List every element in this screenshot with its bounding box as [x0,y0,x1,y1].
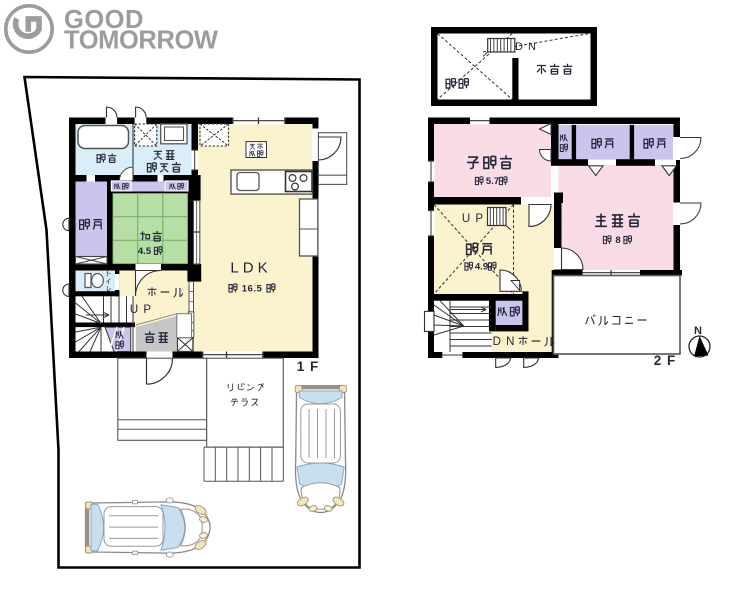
svg-text:1 F: 1 F [297,359,320,374]
svg-text:TOMORROW: TOMORROW [64,27,219,55]
svg-text:N: N [694,325,702,337]
svg-text:8: 8 [615,235,620,246]
svg-text:D N: D N [493,336,516,348]
svg-text:U P: U P [130,304,152,316]
svg-text:D N: D N [515,41,537,53]
svg-text:16.5: 16.5 [242,284,263,295]
svg-text:5.7: 5.7 [486,176,499,187]
svg-text:4.9: 4.9 [475,262,488,273]
svg-text:U P: U P [462,213,484,225]
svg-text:2 F: 2 F [654,353,677,368]
svg-text:LDK: LDK [230,260,271,277]
svg-text:4.5: 4.5 [138,246,152,257]
